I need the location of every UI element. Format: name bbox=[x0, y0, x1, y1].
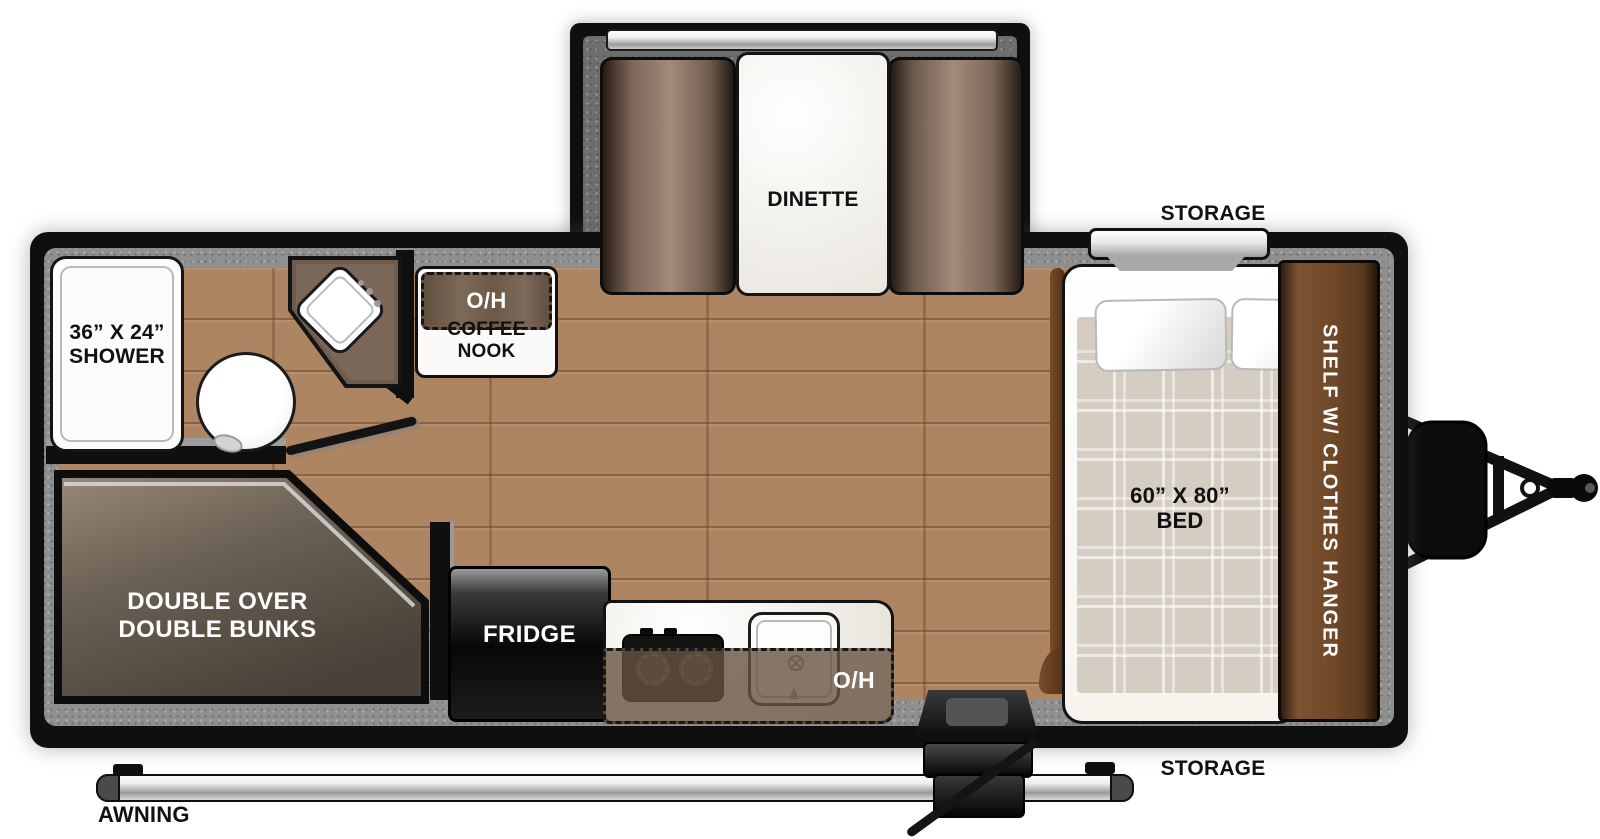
storage-label-bottom: STORAGE bbox=[1143, 757, 1283, 781]
cooktop-knob bbox=[664, 628, 677, 635]
dinette-label: DINETTE bbox=[739, 188, 887, 212]
fridge: FRIDGE bbox=[448, 566, 611, 722]
dinette-bench-left bbox=[600, 57, 736, 295]
dinette-bench-right bbox=[888, 57, 1024, 295]
awning-bracket-left bbox=[113, 764, 143, 776]
bed-label: 60” X 80” BED bbox=[1065, 483, 1295, 534]
faucet-dot bbox=[366, 288, 373, 295]
cooktop-knob bbox=[640, 628, 653, 635]
awning-bracket-right bbox=[1085, 762, 1115, 774]
dinette-table: DINETTE bbox=[736, 52, 890, 296]
hitch-assembly bbox=[1392, 400, 1600, 582]
awning-label: AWNING bbox=[98, 802, 228, 827]
shower-label: 36” X 24” SHOWER bbox=[53, 321, 181, 369]
propane-tank bbox=[1408, 422, 1486, 558]
coffee-nook-overhead-label: O/H bbox=[466, 288, 506, 313]
shower-fixture: 36” X 24” SHOWER bbox=[50, 256, 184, 452]
bed-pillow bbox=[1094, 298, 1227, 372]
bunk-label: DOUBLE OVER DOUBLE BUNKS bbox=[110, 588, 325, 643]
coffee-nook: O/H COFFEE NOOK bbox=[415, 266, 558, 378]
floorplan: AWNING 36” X 24” SHOWER bbox=[0, 0, 1600, 839]
awning-end-cap-right bbox=[1110, 774, 1134, 802]
toilet-fixture bbox=[196, 352, 296, 452]
bed: 60” X 80” BED bbox=[1062, 264, 1298, 724]
fridge-label: FRIDGE bbox=[451, 621, 608, 649]
storage-label-top: STORAGE bbox=[1128, 202, 1298, 226]
wardrobe-label: SHELF W/ CLOTHES HANGER bbox=[1318, 324, 1341, 659]
kitchen-overhead-cabinet: O/H bbox=[603, 648, 894, 724]
slide-topper-awning bbox=[606, 29, 998, 51]
coffee-nook-label: COFFEE NOOK bbox=[418, 319, 555, 363]
bunk-bed bbox=[48, 456, 430, 704]
entry-step-pad bbox=[946, 698, 1008, 726]
wardrobe-shelf: SHELF W/ CLOTHES HANGER bbox=[1278, 260, 1380, 722]
faucet-dot bbox=[374, 300, 381, 307]
awning-end-cap-left bbox=[96, 774, 120, 802]
storage-hatch-lid bbox=[1098, 255, 1254, 271]
faucet-dot bbox=[358, 280, 364, 286]
kitchen-overhead-label: O/H bbox=[833, 667, 875, 693]
